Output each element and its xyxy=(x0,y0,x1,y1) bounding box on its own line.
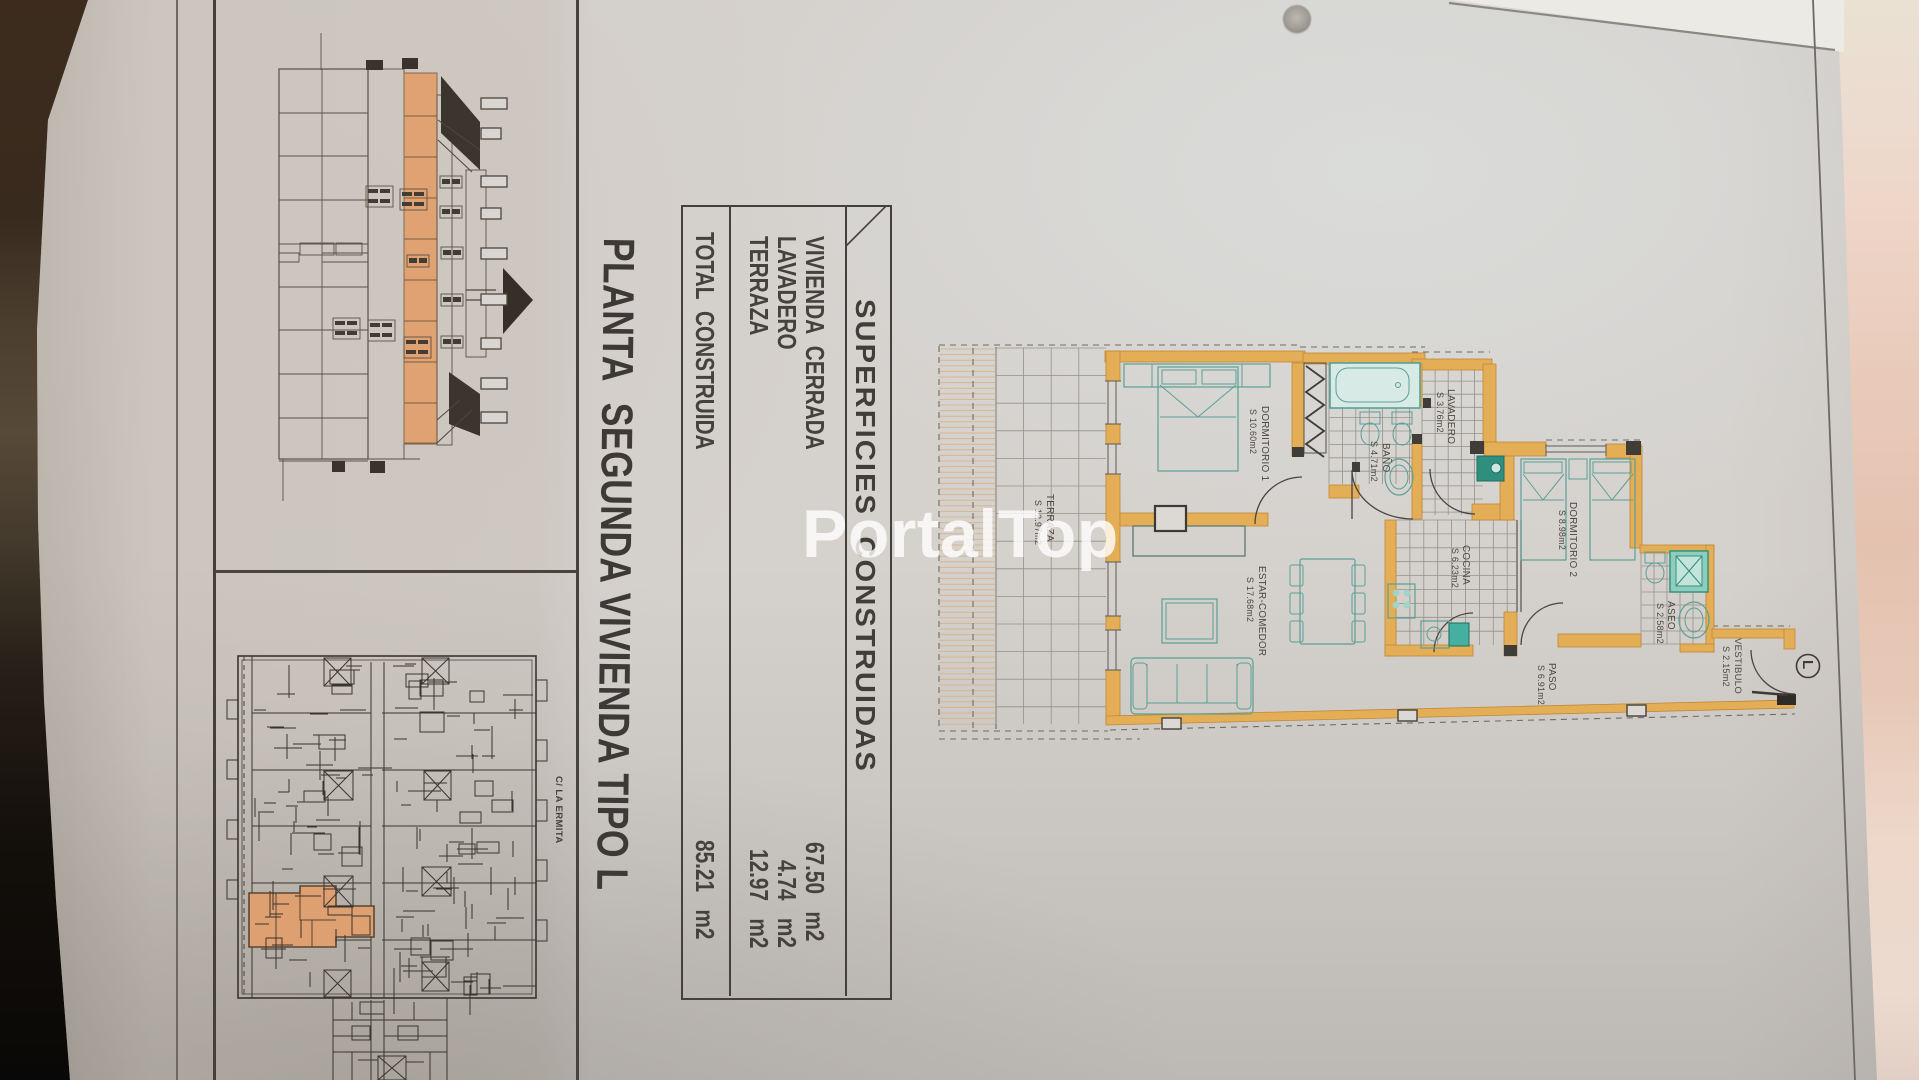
svg-text:S 3.76m2: S 3.76m2 xyxy=(1435,392,1445,433)
svg-text:S 2.58m2: S 2.58m2 xyxy=(1655,603,1665,644)
svg-text:COCINA: COCINA xyxy=(1460,545,1471,585)
svg-text:S 8.98m2: S 8.98m2 xyxy=(1557,510,1567,550)
svg-text:DORMITORIO 2: DORMITORIO 2 xyxy=(1567,502,1578,577)
svg-text:PASO: PASO xyxy=(1546,663,1557,691)
svg-text:BAÑO: BAÑO xyxy=(1380,443,1393,473)
svg-text:ESTAR-COMEDOR: ESTAR-COMEDOR xyxy=(1256,566,1267,656)
svg-text:L: L xyxy=(1799,660,1816,669)
svg-text:S 17.68m2: S 17.68m2 xyxy=(1245,577,1255,622)
svg-text:ASEO: ASEO xyxy=(1665,601,1676,630)
svg-text:S 10.60m2: S 10.60m2 xyxy=(1248,409,1258,454)
svg-text:S 6.23m2: S 6.23m2 xyxy=(1450,548,1460,588)
svg-text:VESTIBULO: VESTIBULO xyxy=(1732,638,1743,694)
svg-text:LAVADERO: LAVADERO xyxy=(1445,389,1456,444)
svg-text:DORMITORIO 1: DORMITORIO 1 xyxy=(1259,406,1270,481)
svg-text:S 6.91m2: S 6.91m2 xyxy=(1536,665,1546,705)
svg-text:C/ LA ERMITA: C/ LA ERMITA xyxy=(553,776,564,844)
svg-text:S 4.71m2: S 4.71m2 xyxy=(1369,441,1379,482)
svg-text:S 2.15m2: S 2.15m2 xyxy=(1721,646,1731,687)
